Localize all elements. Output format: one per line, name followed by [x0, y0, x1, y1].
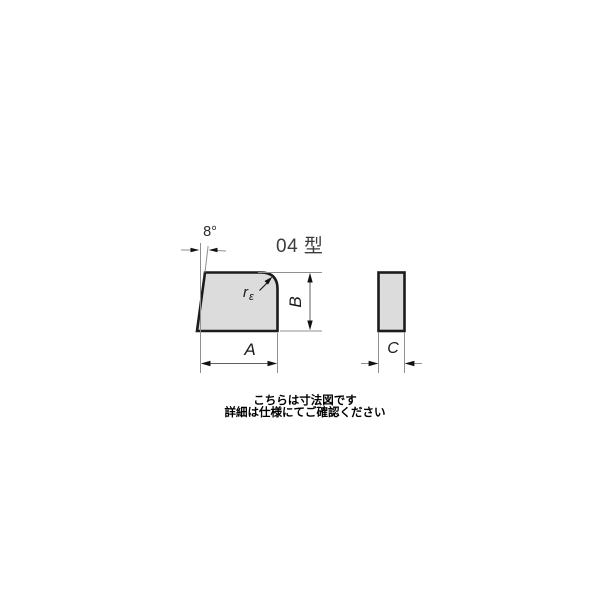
caption-line-2: 詳細は仕様にてご確認ください	[5, 407, 600, 419]
c-right-arrowhead	[405, 361, 415, 366]
edge-extension-line	[205, 246, 208, 273]
radius-symbol: r	[243, 284, 248, 301]
dimension-b-label: B	[286, 292, 306, 312]
insert-front-view-shape	[379, 273, 405, 332]
type-title: 04 型	[276, 231, 323, 258]
dimension-a-label: A	[241, 340, 259, 360]
caption-line-1: こちらは寸法図です	[5, 395, 600, 407]
dimension-c-label: C	[384, 340, 402, 358]
radius-subscript: ε	[249, 291, 254, 303]
caption-block: こちらは寸法図です 詳細は仕様にてご確認ください	[0, 395, 600, 419]
c-left-arrowhead	[369, 361, 379, 366]
dimension-figure-page: 8° 04 型 rε B A C こちらは寸法図です 詳細は仕様にてご確認くださ…	[0, 0, 600, 600]
a-left-arrowhead	[201, 361, 211, 366]
b-bottom-arrowhead	[307, 321, 312, 331]
corner-radius-label: rε	[243, 284, 253, 302]
angle-right-arrowhead	[209, 248, 218, 252]
angle-label: 8°	[198, 224, 222, 240]
b-top-arrowhead	[307, 273, 312, 283]
angle-left-arrowhead	[191, 248, 200, 252]
a-right-arrowhead	[268, 361, 278, 366]
